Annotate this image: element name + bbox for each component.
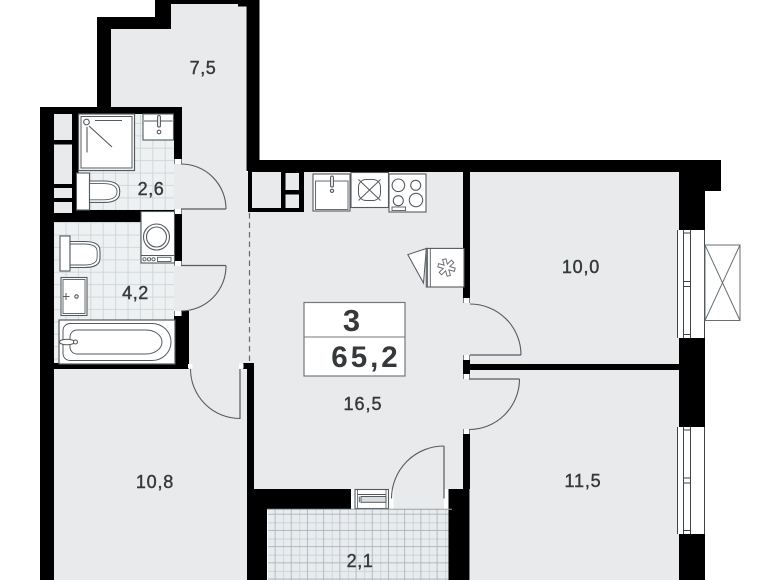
svg-text:16,5: 16,5: [343, 394, 382, 414]
svg-text:11,5: 11,5: [565, 471, 602, 491]
svg-text:3: 3: [343, 303, 360, 338]
svg-text:7,5: 7,5: [190, 58, 217, 78]
svg-text:10,0: 10,0: [562, 257, 600, 277]
svg-text:2,1: 2,1: [347, 551, 374, 571]
svg-text:10,8: 10,8: [136, 472, 174, 492]
svg-text:65,2: 65,2: [331, 341, 400, 374]
svg-text:4,2: 4,2: [122, 283, 149, 303]
svg-text:2,6: 2,6: [138, 179, 165, 199]
